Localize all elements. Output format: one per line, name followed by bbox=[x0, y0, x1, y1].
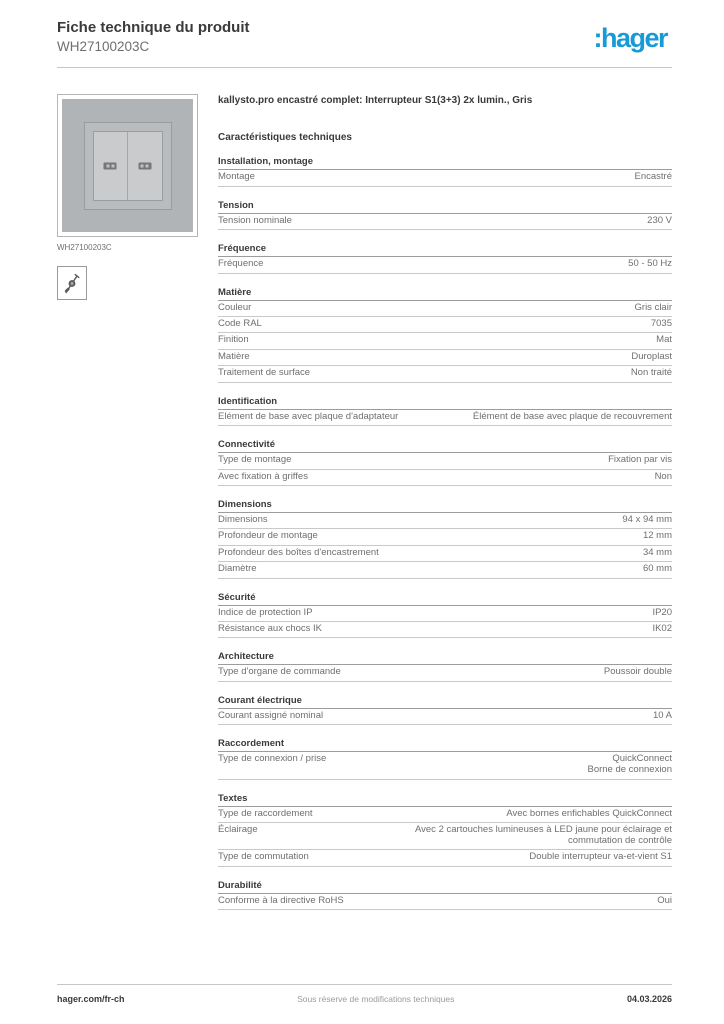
spec-row: Courant assigné nominal10 A bbox=[218, 709, 672, 725]
spec-section: RaccordementType de connexion / priseQui… bbox=[218, 738, 672, 779]
spec-value: Non bbox=[322, 472, 672, 483]
section-heading: Raccordement bbox=[218, 738, 672, 752]
spec-value: QuickConnect Borne de connexion bbox=[340, 754, 672, 776]
spec-value: Gris clair bbox=[265, 303, 672, 314]
spec-value: Duroplast bbox=[264, 352, 672, 363]
spec-sections: Installation, montageMontageEncastréTens… bbox=[218, 156, 672, 910]
footer-disclaimer: Sous réserve de modifications techniques bbox=[297, 994, 454, 1004]
product-image bbox=[57, 94, 198, 237]
characteristics-title: Caractéristiques techniques bbox=[218, 132, 672, 143]
spec-row: Profondeur de montage12 mm bbox=[218, 529, 672, 545]
spec-section: DurabilitéConforme à la directive RoHSOu… bbox=[218, 880, 672, 910]
spec-row: Résistance aux chocs IKIK02 bbox=[218, 622, 672, 638]
spec-row: FinitionMat bbox=[218, 333, 672, 349]
spec-value: Poussoir double bbox=[355, 667, 672, 678]
screw-fixing-icon bbox=[57, 266, 87, 300]
spec-section: TensionTension nominale230 V bbox=[218, 200, 672, 230]
spec-value: Mat bbox=[263, 335, 672, 346]
spec-value: 94 x 94 mm bbox=[282, 515, 672, 526]
spec-section: ConnectivitéType de montageFixation par … bbox=[218, 439, 672, 486]
section-heading: Matière bbox=[218, 287, 672, 301]
spec-label: Diamètre bbox=[218, 564, 257, 575]
spec-section: IdentificationElément de base avec plaqu… bbox=[218, 396, 672, 426]
spec-section: DimensionsDimensions94 x 94 mmProfondeur… bbox=[218, 499, 672, 579]
spec-row: Fréquence50 - 50 Hz bbox=[218, 257, 672, 273]
spec-row: Profondeur des boîtes d'encastrement34 m… bbox=[218, 546, 672, 562]
spec-value: 12 mm bbox=[332, 531, 672, 542]
spec-value: Encastré bbox=[269, 172, 672, 183]
right-column: kallysto.pro encastré complet: Interrupt… bbox=[218, 94, 672, 910]
section-heading: Fréquence bbox=[218, 243, 672, 257]
spec-row: Type de commutationDouble interrupteur v… bbox=[218, 850, 672, 866]
spec-row: Conforme à la directive RoHSOui bbox=[218, 894, 672, 910]
page-title: Fiche technique du produit bbox=[57, 19, 250, 38]
spec-label: Conforme à la directive RoHS bbox=[218, 896, 344, 907]
spec-label: Type de connexion / prise bbox=[218, 754, 326, 765]
page-header: Fiche technique du produit WH27100203C :… bbox=[0, 0, 724, 55]
spec-label: Elément de base avec plaque d'adaptateur bbox=[218, 412, 398, 423]
spec-row: Traitement de surfaceNon traité bbox=[218, 366, 672, 382]
led-indicator bbox=[138, 162, 151, 169]
rocker-right bbox=[127, 132, 162, 200]
hager-logo: :hager bbox=[593, 25, 667, 52]
switch-rockers bbox=[93, 131, 163, 201]
spec-label: Type d'organe de commande bbox=[218, 667, 341, 678]
datasheet-page: Fiche technique du produit WH27100203C :… bbox=[0, 0, 724, 1024]
spec-value: 34 mm bbox=[393, 548, 672, 559]
spec-section: Installation, montageMontageEncastré bbox=[218, 156, 672, 186]
spec-value: Avec bornes enfichables QuickConnect bbox=[327, 809, 672, 820]
spec-row: Avec fixation à griffesNon bbox=[218, 470, 672, 486]
spec-value: 50 - 50 Hz bbox=[277, 259, 672, 270]
spec-row: Type de montageFixation par vis bbox=[218, 453, 672, 469]
spec-value: 60 mm bbox=[271, 564, 672, 575]
spec-row: Elément de base avec plaque d'adaptateur… bbox=[218, 410, 672, 426]
spec-row: Code RAL7035 bbox=[218, 317, 672, 333]
spec-label: Type de raccordement bbox=[218, 809, 313, 820]
section-heading: Tension bbox=[218, 200, 672, 214]
spec-label: Montage bbox=[218, 172, 255, 183]
spec-row: CouleurGris clair bbox=[218, 301, 672, 317]
spec-section: FréquenceFréquence50 - 50 Hz bbox=[218, 243, 672, 273]
spec-label: Couleur bbox=[218, 303, 251, 314]
spec-row: Type de connexion / priseQuickConnect Bo… bbox=[218, 752, 672, 779]
footer-date: 04.03.2026 bbox=[627, 994, 672, 1004]
section-heading: Sécurité bbox=[218, 592, 672, 606]
spec-section: Courant électriqueCourant assigné nomina… bbox=[218, 695, 672, 725]
spec-label: Traitement de surface bbox=[218, 368, 310, 379]
spec-label: Indice de protection IP bbox=[218, 608, 313, 619]
spec-row: Type de raccordementAvec bornes enfichab… bbox=[218, 807, 672, 823]
image-caption: WH27100203C bbox=[57, 243, 218, 252]
spec-value: 230 V bbox=[306, 216, 672, 227]
spec-label: Éclairage bbox=[218, 825, 258, 836]
left-column: WH27100203C bbox=[57, 94, 218, 910]
spec-label: Avec fixation à griffes bbox=[218, 472, 308, 483]
spec-label: Résistance aux chocs IK bbox=[218, 624, 322, 635]
section-heading: Textes bbox=[218, 793, 672, 807]
spec-row: Dimensions94 x 94 mm bbox=[218, 513, 672, 529]
section-heading: Dimensions bbox=[218, 499, 672, 513]
spec-section: ArchitectureType d'organe de commandePou… bbox=[218, 651, 672, 681]
section-heading: Identification bbox=[218, 396, 672, 410]
spec-row: Diamètre60 mm bbox=[218, 562, 672, 578]
spec-row: Tension nominale230 V bbox=[218, 214, 672, 230]
spec-label: Profondeur de montage bbox=[218, 531, 318, 542]
spec-label: Matière bbox=[218, 352, 250, 363]
spec-section: MatièreCouleurGris clairCode RAL7035Fini… bbox=[218, 287, 672, 383]
spec-value: 7035 bbox=[276, 319, 672, 330]
spec-label: Type de montage bbox=[218, 455, 291, 466]
header-titles: Fiche technique du produit WH27100203C bbox=[57, 19, 250, 55]
product-code: WH27100203C bbox=[57, 38, 250, 56]
spec-label: Type de commutation bbox=[218, 852, 309, 863]
section-heading: Installation, montage bbox=[218, 156, 672, 170]
spec-value: Non traité bbox=[324, 368, 672, 379]
spec-section: TextesType de raccordementAvec bornes en… bbox=[218, 793, 672, 867]
spec-value: Double interrupteur va-et-vient S1 bbox=[323, 852, 672, 863]
product-name: kallysto.pro encastré complet: Interrupt… bbox=[218, 94, 672, 107]
spec-row: MontageEncastré bbox=[218, 170, 672, 186]
section-heading: Connectivité bbox=[218, 439, 672, 453]
page-footer: hager.com/fr-ch Sous réserve de modifica… bbox=[57, 984, 672, 1004]
spec-label: Dimensions bbox=[218, 515, 268, 526]
section-heading: Courant électrique bbox=[218, 695, 672, 709]
footer-website: hager.com/fr-ch bbox=[57, 994, 125, 1004]
spec-label: Fréquence bbox=[218, 259, 263, 270]
spec-value: Fixation par vis bbox=[305, 455, 672, 466]
section-heading: Durabilité bbox=[218, 880, 672, 894]
section-heading: Architecture bbox=[218, 651, 672, 665]
spec-value: Oui bbox=[358, 896, 672, 907]
spec-value: Élément de base avec plaque de recouvrem… bbox=[412, 412, 672, 423]
spec-label: Code RAL bbox=[218, 319, 262, 330]
spec-value: 10 A bbox=[337, 711, 672, 722]
spec-row: Type d'organe de commandePoussoir double bbox=[218, 665, 672, 681]
spec-value: IK02 bbox=[336, 624, 672, 635]
switch-frame bbox=[84, 122, 172, 210]
spec-row: MatièreDuroplast bbox=[218, 350, 672, 366]
spec-label: Courant assigné nominal bbox=[218, 711, 323, 722]
spec-row: Indice de protection IPIP20 bbox=[218, 606, 672, 622]
led-indicator bbox=[104, 162, 117, 169]
content-area: WH27100203C kallysto.pro encastré comple… bbox=[0, 68, 724, 910]
product-photo bbox=[62, 99, 193, 232]
spec-value: Avec 2 cartouches lumineuses à LED jaune… bbox=[272, 825, 672, 847]
spec-label: Finition bbox=[218, 335, 249, 346]
spec-label: Tension nominale bbox=[218, 216, 292, 227]
spec-row: ÉclairageAvec 2 cartouches lumineuses à … bbox=[218, 823, 672, 850]
spec-value: IP20 bbox=[327, 608, 672, 619]
rocker-left bbox=[94, 132, 128, 200]
spec-label: Profondeur des boîtes d'encastrement bbox=[218, 548, 379, 559]
spec-section: SécuritéIndice de protection IPIP20Résis… bbox=[218, 592, 672, 639]
